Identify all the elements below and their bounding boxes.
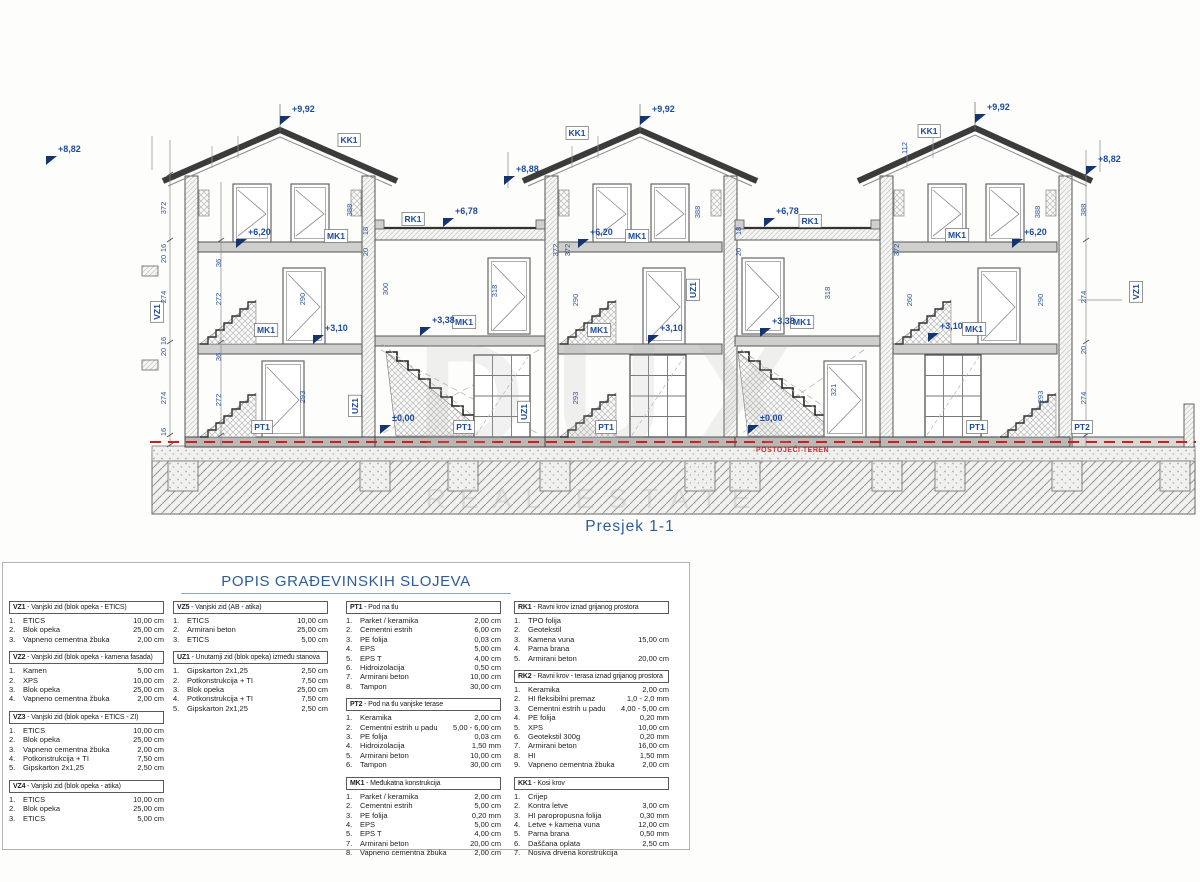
svg-text:+6,20: +6,20 (1024, 227, 1047, 237)
layer-block-header: RK2 - Ravni krov - terasa iznad grijanog… (514, 670, 669, 683)
layer-block-RK2: RK2 - Ravni krov - terasa iznad grijanog… (514, 670, 669, 770)
layer-row: 3.ETICS5,00 cm (173, 635, 328, 644)
svg-text:KK1: KK1 (920, 126, 937, 136)
layers-grid: VZ1 - Vanjski zid (blok opeka - ETICS)1.… (3, 599, 689, 839)
svg-text:+8,88: +8,88 (516, 164, 539, 174)
layer-block-header: KK1 - Kosi krov (514, 777, 669, 790)
dimension-text: 372 (892, 244, 901, 257)
layer-row: 4.Potkonstrukcija + TI7,50 cm (9, 754, 164, 763)
dimension-text: 372 (159, 202, 168, 215)
tag-kk1: KK1 (566, 127, 588, 140)
dimension-text: 293 (1036, 391, 1045, 404)
layer-row: 4.Vapneno cementna žbuka2,00 cm (9, 694, 164, 703)
svg-text:+6,20: +6,20 (590, 227, 613, 237)
layer-row: 1.Kamen5,00 cm (9, 666, 164, 675)
layer-block-header: UZ1 - Unutarnji zid (blok opeka) između … (173, 651, 328, 664)
layer-row: 1.Crijep (514, 792, 669, 801)
dimension-text: 16 (159, 244, 168, 252)
layer-row: 7.Armirani beton16,00 cm (514, 741, 669, 750)
layer-row: 4.Hidroizolacija1,50 mm (346, 741, 501, 750)
tag-pt1: PT1 (252, 421, 273, 434)
layer-row: 3.PE folija0,03 cm (346, 732, 501, 741)
dimension-text: 260 (905, 294, 914, 307)
elevation-mark: +8,82 (1086, 154, 1121, 175)
svg-text:VZ1: VZ1 (1131, 284, 1141, 300)
dimension-text: 36 (214, 353, 223, 361)
layers-column-2: VZ5 - Vanjski zid (AB - atika)1.ETICS10,… (173, 601, 328, 720)
parapet-wall (1184, 404, 1194, 447)
dimension-text: 274 (159, 291, 168, 304)
tag-mk1: MK1 (325, 230, 348, 243)
svg-text:RK1: RK1 (404, 214, 421, 224)
layer-block-RK1: RK1 - Ravni krov iznad grijanog prostora… (514, 601, 669, 663)
layer-block-header: RK1 - Ravni krov iznad grijanog prostora (514, 601, 669, 614)
layer-row: 1.ETICS10,00 cm (9, 616, 164, 625)
dimension-text: 372 (551, 244, 560, 257)
svg-text:+6,20: +6,20 (248, 227, 271, 237)
layer-row: 1.Gipskarton 2x1,252,50 cm (173, 666, 328, 675)
dimension-text: 321 (829, 384, 838, 397)
dimension-text: 20 (1079, 346, 1088, 354)
tag-kk1: KK1 (918, 125, 940, 138)
tag-pt2: PT2 (1072, 421, 1093, 434)
svg-text:MK1: MK1 (793, 317, 811, 327)
tag-uz1: UZ1 (518, 401, 531, 422)
dimension-text: 272 (214, 293, 223, 306)
layer-block-VZ4: VZ4 - Vanjski zid (blok opeka - atika)1.… (9, 780, 164, 823)
dimension-text: 388 (1033, 206, 1042, 219)
layer-row: 5.Armirani beton20,00 cm (514, 654, 669, 663)
layer-row: 2.Armirani beton25,00 cm (173, 625, 328, 634)
dimension-text: 20 (361, 248, 370, 256)
layer-row: 8.HI1,50 mm (514, 751, 669, 760)
layers-column-1: VZ1 - Vanjski zid (blok opeka - ETICS)1.… (9, 601, 164, 830)
svg-text:KK1: KK1 (568, 128, 585, 138)
tag-pt1: PT1 (596, 421, 617, 434)
section-drawing: DUX REAL ESTATE POSTOJEĆI TEREN KK1KK1KK… (0, 0, 1200, 558)
svg-text:+3,38: +3,38 (772, 316, 795, 326)
tag-vz1: VZ1 (1130, 281, 1143, 302)
elevation-mark: +9,92 (280, 104, 315, 125)
layer-block-VZ5: VZ5 - Vanjski zid (AB - atika)1.ETICS10,… (173, 601, 328, 644)
dimension-text: 290 (1036, 294, 1045, 307)
layer-block-UZ1: UZ1 - Unutarnji zid (blok opeka) između … (173, 651, 328, 713)
dimension-text: 16 (159, 337, 168, 345)
tag-mk1: MK1 (946, 229, 969, 242)
tag-uz1: UZ1 (687, 279, 700, 300)
layer-row: 5.Armirani beton10,00 cm (346, 751, 501, 760)
layer-row: 4.EPS5,00 cm (346, 820, 501, 829)
layer-row: 6.Daščana oplata2,50 cm (514, 839, 669, 848)
layer-row: 4.Potkonstrukcija + TI7,50 cm (173, 694, 328, 703)
layer-row: 7.Armirani beton20,00 cm (346, 839, 501, 848)
layer-row: 4.PE folija0,20 mm (514, 713, 669, 722)
layer-row: 5.Parna brana0,50 mm (514, 829, 669, 838)
layer-block-header: PT2 - Pod na tlu vanjske terase (346, 698, 501, 711)
layer-block-VZ3: VZ3 - Vanjski zid (blok opeka - ETICS - … (9, 711, 164, 773)
tag-mk1: MK1 (626, 230, 649, 243)
layer-block-header: MK1 - Međukatna konstrukcija (346, 777, 501, 790)
layer-row: 7.Nosiva drvena konstrukcija (514, 848, 669, 857)
layer-row: 2.Cementni estrih u padu5,00 - 6,00 cm (346, 723, 501, 732)
svg-text:RK1: RK1 (801, 216, 818, 226)
layer-row: 1.Parket / keramika2,00 cm (346, 616, 501, 625)
layer-row: 2.Blok opeka25,00 cm (9, 735, 164, 744)
layer-row: 6.Hidroizolacija0,50 cm (346, 663, 501, 672)
dimension-text: 20 (159, 255, 168, 263)
layer-row: 4.EPS5,00 cm (346, 644, 501, 653)
layer-row: 3.Vapneno cementna žbuka2,00 cm (9, 745, 164, 754)
elevation-mark: +6,78 (443, 206, 478, 227)
layer-row: 1.Parket / keramika2,00 cm (346, 792, 501, 801)
layer-row: 3.ETICS5,00 cm (9, 814, 164, 823)
dimension-text: 20 (159, 348, 168, 356)
dimension-text: 372 (563, 244, 572, 257)
layer-row: 3.HI paropropusna folija0,30 mm (514, 811, 669, 820)
dimension-text: 20 (734, 248, 743, 256)
tag-rk1: RK1 (799, 215, 821, 228)
svg-text:+8,82: +8,82 (1098, 154, 1121, 164)
svg-text:+3,10: +3,10 (940, 321, 963, 331)
svg-text:+6,78: +6,78 (776, 206, 799, 216)
layer-row: 2.Cementni estrih6,00 cm (346, 625, 501, 634)
dimension-text: 318 (490, 285, 499, 298)
dimension-text: 388 (1079, 204, 1088, 217)
tag-mk1: MK1 (255, 324, 278, 337)
tag-mk1: MK1 (963, 323, 986, 336)
layer-block-header: VZ4 - Vanjski zid (blok opeka - atika) (9, 780, 164, 793)
dimension-text: 290 (571, 294, 580, 307)
svg-text:MK1: MK1 (965, 324, 983, 334)
layer-block-MK1: MK1 - Međukatna konstrukcija1.Parket / k… (346, 777, 501, 858)
svg-text:MK1: MK1 (327, 231, 345, 241)
dimension-text: 300 (381, 283, 390, 296)
tag-rk1: RK1 (402, 213, 424, 226)
layer-row: 6.Tampon30,00 cm (346, 760, 501, 769)
layer-row: 3.Vapneno cementna žbuka2,00 cm (9, 635, 164, 644)
elevation-mark: +9,92 (975, 102, 1010, 123)
layer-row: 2.Blok opeka25,00 cm (9, 625, 164, 634)
layer-row: 8.Vapneno cementna žbuka2,00 cm (346, 848, 501, 857)
layer-row: 7.Armirani beton10,00 cm (346, 672, 501, 681)
dimension-text: 18 (361, 227, 370, 235)
layer-block-header: VZ1 - Vanjski zid (blok opeka - ETICS) (9, 601, 164, 614)
layer-row: 2.Kontra letve3,00 cm (514, 801, 669, 810)
dimension-text: 388 (693, 206, 702, 219)
svg-text:+9,92: +9,92 (987, 102, 1010, 112)
layer-block-PT2: PT2 - Pod na tlu vanjske terase1.Keramik… (346, 698, 501, 769)
layer-block-header: VZ2 - Vanjski zid (blok opeka - kamena f… (9, 651, 164, 664)
svg-text:MK1: MK1 (628, 231, 646, 241)
layer-row: 9.Vapneno cementna žbuka2,00 cm (514, 760, 669, 769)
svg-text:+3,10: +3,10 (660, 323, 683, 333)
tag-pt1: PT1 (967, 421, 988, 434)
dimension-text: 16 (159, 428, 168, 436)
layer-row: 5.Gipskarton 2x1,252,50 cm (9, 763, 164, 772)
svg-text:PT1: PT1 (598, 422, 614, 432)
layer-row: 2.Blok opeka25,00 cm (9, 804, 164, 813)
layer-row: 4.Parna brana (514, 644, 669, 653)
elevation-mark: +9,92 (640, 104, 675, 125)
gable-roof (858, 128, 1092, 181)
layer-row: 1.ETICS10,00 cm (173, 616, 328, 625)
svg-text:MK1: MK1 (590, 325, 608, 335)
layers-title: POPIS GRAĐEVINSKIH SLOJEVA (181, 573, 511, 594)
svg-text:MK1: MK1 (257, 325, 275, 335)
watermark-dux: DUX (417, 312, 824, 480)
layer-row: 2.Geotekstil (514, 625, 669, 634)
page: DUX REAL ESTATE POSTOJEĆI TEREN KK1KK1KK… (0, 0, 1200, 882)
layers-column-4: RK1 - Ravni krov iznad grijanog prostora… (514, 601, 669, 865)
layer-row: 1.Keramika2,00 cm (346, 713, 501, 722)
layer-row: 3.Kamena vuna15,00 cm (514, 635, 669, 644)
svg-text:+9,92: +9,92 (652, 104, 675, 114)
layer-row: 5.Gipskarton 2x1,252,50 cm (173, 704, 328, 713)
layer-row: 8.Tampon30,00 cm (346, 682, 501, 691)
layer-row: 5.EPS T4,00 cm (346, 829, 501, 838)
dimension-text: 272 (214, 394, 223, 407)
layer-row: 1.ETICS10,00 cm (9, 726, 164, 735)
svg-text:UZ1: UZ1 (519, 404, 529, 420)
layer-row: 3.PE folija0,20 mm (346, 811, 501, 820)
svg-text:+8,82: +8,82 (58, 144, 81, 154)
dimension-text: 36 (214, 259, 223, 267)
layer-row: 1.ETICS10,00 cm (9, 795, 164, 804)
svg-text:+3,38: +3,38 (432, 315, 455, 325)
svg-text:+9,92: +9,92 (292, 104, 315, 114)
dimension-text: 293 (571, 392, 580, 405)
layers-column-3: PT1 - Pod na tlu1.Parket / keramika2,00 … (346, 601, 501, 865)
svg-text:KK1: KK1 (340, 135, 357, 145)
dimension-text: 388 (345, 204, 354, 217)
layers-table: POPIS GRAĐEVINSKIH SLOJEVA VZ1 - Vanjski… (2, 562, 690, 850)
layer-row: 2.Cementni estrih5,00 cm (346, 801, 501, 810)
layer-row: 5.XPS10,00 cm (514, 723, 669, 732)
svg-text:+3,10: +3,10 (325, 323, 348, 333)
layer-row: 2.HI fleksibilni premaz1,0 - 2,0 mm (514, 694, 669, 703)
layer-row: 3.Cementni estrih u padu4,00 - 5,00 cm (514, 704, 669, 713)
svg-text:MK1: MK1 (948, 230, 966, 240)
layer-row: 6.Geotekstil 300g0,20 mm (514, 732, 669, 741)
svg-text:PT1: PT1 (254, 422, 270, 432)
layer-row: 1.TPO folija (514, 616, 669, 625)
svg-text:PT1: PT1 (969, 422, 985, 432)
tag-kk1: KK1 (338, 134, 360, 147)
svg-text:PT2: PT2 (1074, 422, 1090, 432)
svg-text:UZ1: UZ1 (350, 398, 360, 414)
tag-mk1: MK1 (588, 324, 611, 337)
layer-row: 2.Potkonstrukcija + TI7,50 cm (173, 676, 328, 685)
layer-block-header: PT1 - Pod na tlu (346, 601, 501, 614)
tag-pt1: PT1 (454, 421, 475, 434)
svg-text:VZ1: VZ1 (152, 304, 162, 320)
layer-row: 3.Blok opeka25,00 cm (9, 685, 164, 694)
svg-text:PT1: PT1 (456, 422, 472, 432)
layer-block-header: VZ3 - Vanjski zid (blok opeka - ETICS - … (9, 711, 164, 724)
layer-row: 2.XPS10,00 cm (9, 676, 164, 685)
dimension-text: 290 (298, 293, 307, 306)
layer-row: 3.Blok opeka25,00 cm (173, 685, 328, 694)
dimension-text: 274 (1079, 291, 1088, 304)
terrain-label: POSTOJEĆI TEREN (756, 445, 829, 454)
dimension-text: 318 (823, 287, 832, 300)
layer-block-KK1: KK1 - Kosi krov1.Crijep2.Kontra letve3,0… (514, 777, 669, 858)
drawing-caption: Presjek 1-1 (585, 518, 674, 535)
layer-row: 1.Keramika2,00 cm (514, 685, 669, 694)
svg-text:±0,00: ±0,00 (392, 413, 414, 423)
layer-row: 3.PE folija0,03 cm (346, 635, 501, 644)
watermark-real-estate: REAL ESTATE (426, 483, 765, 514)
svg-text:UZ1: UZ1 (688, 282, 698, 298)
tag-vz1: VZ1 (151, 301, 164, 322)
layer-block-VZ1: VZ1 - Vanjski zid (blok opeka - ETICS)1.… (9, 601, 164, 644)
tag-mk1: MK1 (453, 316, 476, 329)
layer-block-PT1: PT1 - Pod na tlu1.Parket / keramika2,00 … (346, 601, 501, 691)
dimension-text: 112 (900, 142, 909, 154)
dimension-text: 18 (734, 227, 743, 235)
layer-row: 4.Letve + kamena vuna12,00 cm (514, 820, 669, 829)
dimension-text: 293 (298, 391, 307, 404)
svg-text:±0,00: ±0,00 (760, 413, 782, 423)
layer-block-VZ2: VZ2 - Vanjski zid (blok opeka - kamena f… (9, 651, 164, 704)
elevation-mark: +8,82 (46, 144, 81, 165)
tag-uz1: UZ1 (349, 395, 362, 416)
layer-block-header: VZ5 - Vanjski zid (AB - atika) (173, 601, 328, 614)
svg-text:MK1: MK1 (455, 317, 473, 327)
svg-text:+6,78: +6,78 (455, 206, 478, 216)
dimension-text: 274 (159, 392, 168, 405)
layer-row: 5.EPS T4,00 cm (346, 654, 501, 663)
elevation-mark: +6,78 (764, 206, 799, 227)
dimension-text: 274 (1079, 392, 1088, 405)
